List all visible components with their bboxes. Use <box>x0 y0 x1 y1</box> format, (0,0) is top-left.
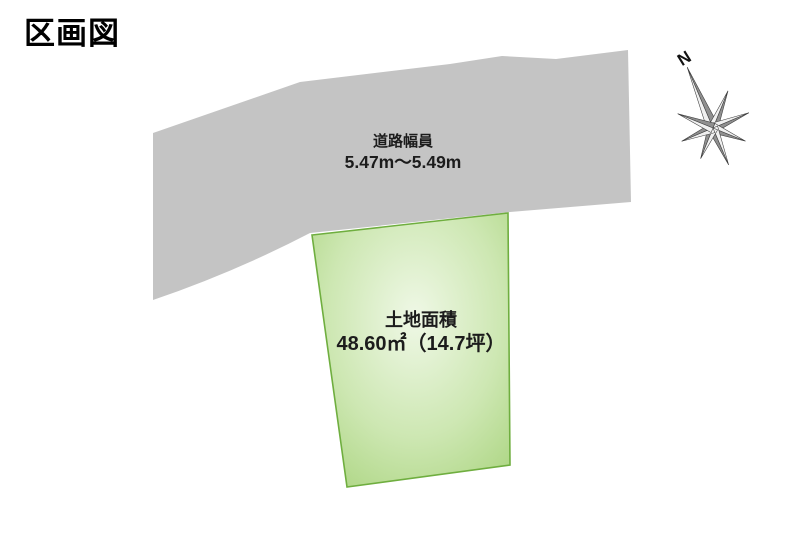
page-title: 区画図 <box>24 8 120 53</box>
road-label: 道路幅員 5.47m～5.49m <box>345 133 462 174</box>
compass-north-label: N <box>674 47 694 70</box>
plot-map-drawing: N <box>0 0 800 554</box>
road-width-value: 5.47m～5.49m <box>345 152 462 174</box>
land-area-label: 土地面積 48.60㎡（14.7坪） <box>337 309 506 357</box>
plot-map-page: N 区画図 道路幅員 5.47m～5.49m 土地面積 48.60㎡（14.7坪… <box>0 0 800 554</box>
land-area-title: 土地面積 <box>337 309 506 332</box>
land-area-value: 48.60㎡（14.7坪） <box>337 332 506 357</box>
compass-rose-icon <box>678 67 749 165</box>
road-name-text: 道路幅員 <box>345 133 462 152</box>
